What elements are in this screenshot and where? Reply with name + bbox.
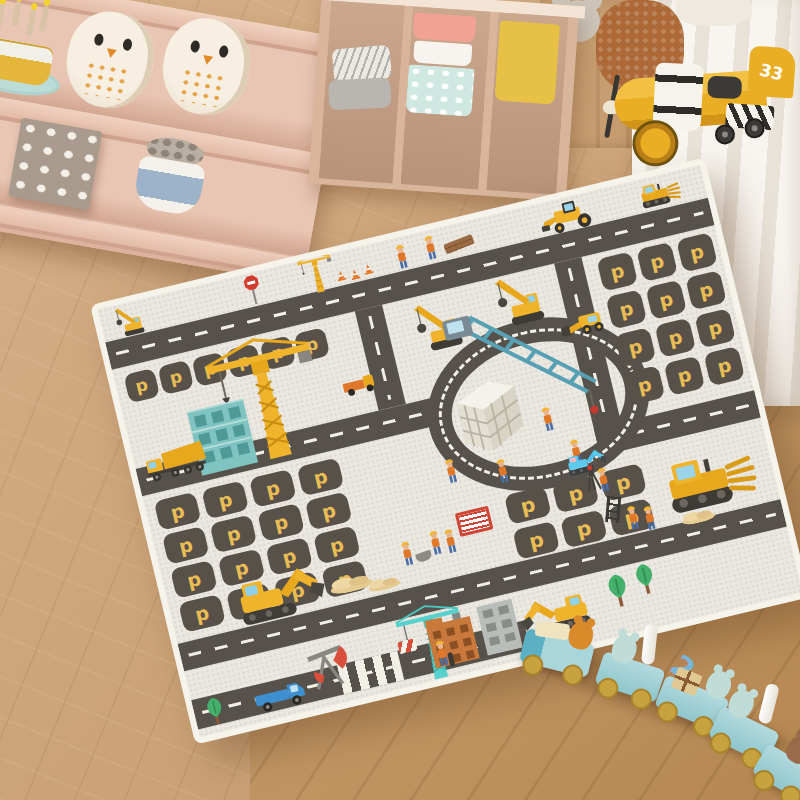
parking-spot: p [703, 346, 745, 386]
parking-spot: p [694, 308, 736, 348]
polka-dot-storage-box [8, 117, 103, 210]
white-plush [676, 0, 752, 26]
parking-spot: p [170, 560, 218, 599]
traffic-cone-icon [362, 262, 375, 276]
engine-roof [534, 620, 570, 641]
parking-spot: p [178, 594, 226, 633]
container-cup [132, 155, 206, 218]
airplane-rear-wheel [746, 120, 763, 137]
parking-spot: p [123, 368, 160, 403]
road-vertical-left [355, 305, 406, 411]
airplane-tail-fin: 33 [747, 45, 796, 98]
plank-pile [443, 234, 475, 254]
owl-beak [202, 55, 213, 66]
cake-candle [0, 4, 5, 31]
parking-spot: p [654, 318, 696, 358]
parking-spot: p [504, 486, 552, 525]
toy-airplane: 33 [592, 21, 800, 165]
parking-spot: p [249, 469, 297, 508]
parking-spot: p [645, 280, 687, 320]
parking-spot: p [154, 492, 202, 531]
parking-spot: p [209, 514, 257, 553]
parking-spot: p [624, 365, 666, 405]
owl-specks [81, 60, 132, 101]
parking-spot: p [605, 289, 647, 329]
parking-spot: p [615, 327, 657, 367]
construction-worker-icon [398, 539, 417, 567]
airplane-tail-number: 33 [758, 59, 786, 84]
parking-spot: p [676, 232, 718, 272]
stop-sign-icon [242, 273, 265, 306]
owl-beak [105, 48, 116, 59]
yellow-bin [495, 21, 560, 105]
mint-polka-bin [406, 64, 475, 116]
airplane-rear-wheel [716, 126, 733, 143]
parking-spot: p [636, 242, 678, 282]
storage-unit [308, 0, 579, 202]
parking-spot: p [596, 251, 638, 291]
parking-spot: p [162, 526, 210, 565]
construction-worker-icon [421, 233, 440, 261]
cake-body [0, 35, 54, 87]
parking-spot: p [305, 491, 353, 530]
train-engine [519, 628, 595, 678]
airplane-seat [707, 76, 742, 99]
gray-pillow [328, 77, 391, 110]
parking-spot: p [201, 480, 249, 519]
parking-spot: p [297, 457, 345, 496]
traffic-cone-icon [349, 267, 362, 281]
pink-bin [413, 13, 477, 43]
parking-spot: p [664, 356, 706, 396]
construction-sign [455, 506, 494, 537]
playroom-photo: pppppp pppppppppppppppp pppppppppppp ppp… [0, 0, 800, 800]
tree-icon [630, 561, 661, 598]
white-bin [413, 41, 472, 67]
storage-slot [480, 12, 574, 195]
parking-spot: p [157, 360, 194, 395]
airplane-wing [653, 62, 704, 130]
parking-spot: p [685, 270, 727, 310]
construction-worker-icon [392, 242, 411, 270]
tree-icon [602, 571, 635, 610]
toy-container [127, 132, 213, 222]
owl-specks [177, 67, 228, 108]
parking-spot: p [257, 503, 305, 542]
parking-spot: p [313, 526, 361, 565]
ladder [605, 496, 621, 523]
blue-pickup-truck-icon [247, 673, 310, 716]
